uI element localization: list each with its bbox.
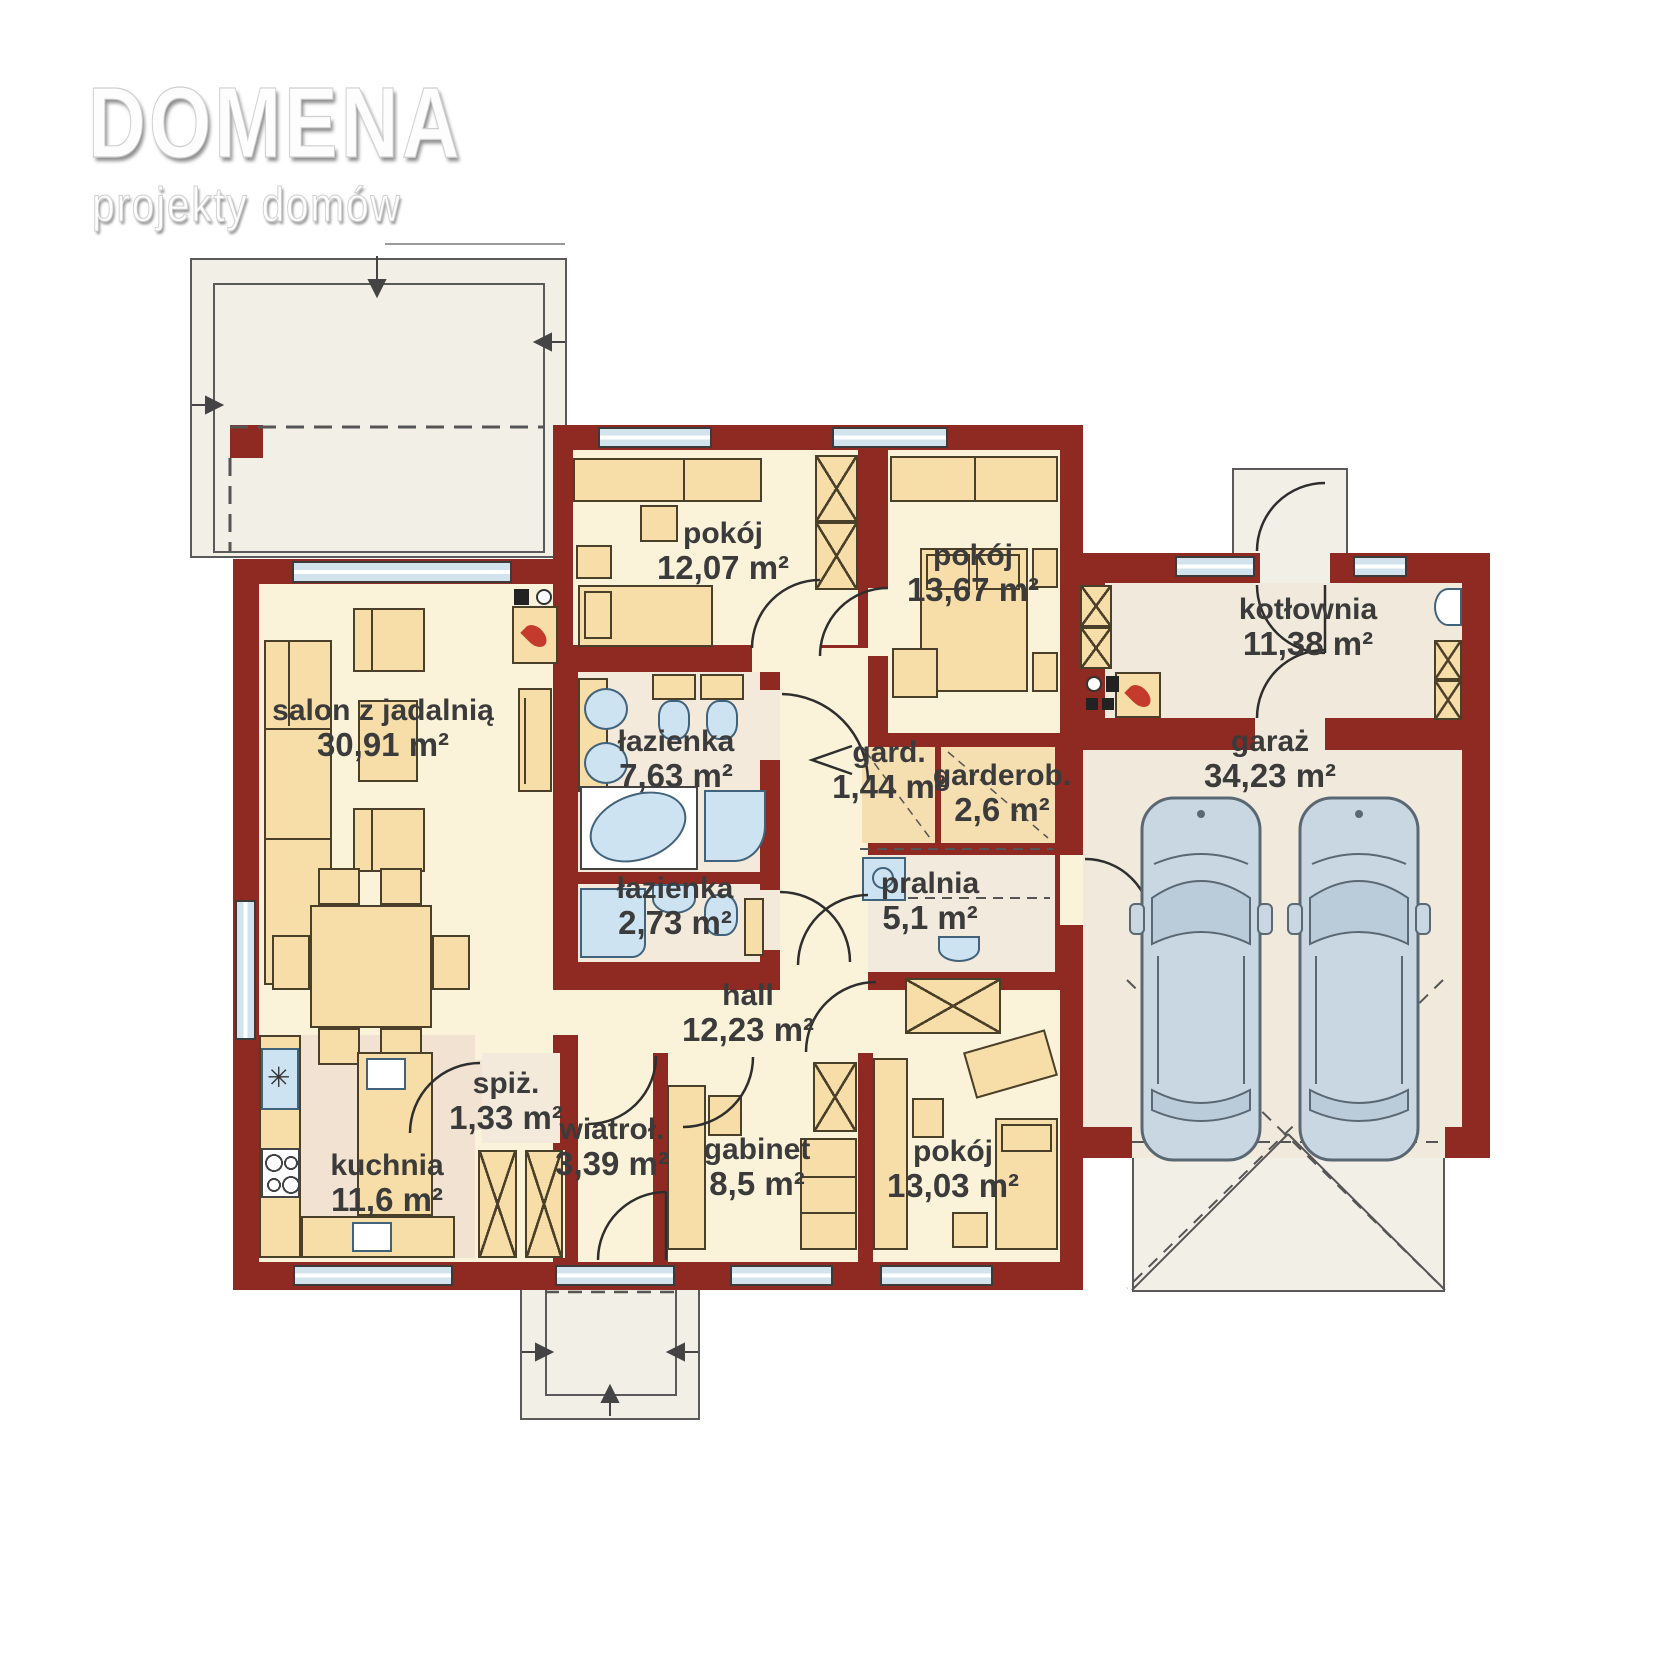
bedroom1-door-opening [752,645,820,672]
wiatrol-door-opening [585,1035,655,1053]
kitchen-sink [352,1222,392,1252]
wardrobe-icon [1434,640,1462,680]
room-label-garage: garaż34,23 m² [1204,726,1336,794]
bucket-icon [536,589,552,605]
wardrobe-icon [1434,680,1462,720]
floorplan-canvas: DOMENA projekty domów [0,0,1680,1680]
bedroom3-door-opening [806,1035,876,1053]
entry-vestibule [1232,468,1348,555]
window-bedroom2 [832,427,948,448]
hall-garage-door-opening [1060,855,1083,925]
toilet-cistern [652,674,696,700]
bath-cabinet [744,898,764,956]
wardrobe-icon [815,455,858,522]
room-label-salon: salon z jadalnią30,91 m² [272,695,494,763]
entry-door-glazing [555,1265,675,1286]
logo-title: DOMENA [88,66,463,181]
porch-inner-line [545,1288,677,1396]
hall-closet [905,978,1001,1034]
room-label-bedroom1: pokój12,07 m² [657,518,789,586]
dining-chair [432,935,470,990]
wardrobe-icon [478,1150,517,1258]
nightstand [1032,652,1058,692]
window-gabinet [730,1265,833,1286]
wardrobe-icon [1080,585,1112,627]
coal-box-icon [1106,676,1119,692]
side-table [952,1212,988,1248]
shower [704,790,766,862]
wardrobe-icon [815,522,858,590]
room-label-wiatrol: wiatroł.3,39 m² [555,1114,669,1182]
room-label-kitchen: kuchnia11,6 m² [330,1150,443,1218]
wardrobe-icon [1080,627,1112,669]
freezer-asterisk-icon: ✳ [267,1064,290,1092]
terrace-chimney [230,425,263,458]
bucket-icon [1086,676,1102,692]
wardrobe-icon [813,1062,857,1132]
hall-salon-opening [553,990,578,1035]
room-label-gabinet: gabinet8,5 m² [704,1134,811,1202]
window-kotlownia-left [1175,556,1255,577]
room-label-hall: hall12,23 m² [682,980,814,1048]
fireplace [512,606,558,664]
desk [573,458,762,502]
sink [584,688,628,730]
dining-table [310,905,432,1028]
window-salon-left [235,900,256,1040]
toilet-cistern [700,674,744,700]
wardrobe [890,456,1058,502]
island-sink [366,1058,406,1090]
armchair [353,808,425,872]
bedroom2-door-opening [868,588,888,656]
room-label-bedroom3: pokój13,03 m² [887,1136,1019,1204]
window-bedroom1 [598,427,712,448]
window-kitchen [293,1265,453,1286]
dining-chair [380,868,422,905]
logo-subtitle: projekty domów [92,178,402,233]
room-label-pralnia: pralnia5,1 m² [881,868,979,936]
window-kotlownia-right [1353,556,1407,577]
dining-chair [318,1028,360,1065]
boiler [1115,672,1161,718]
kotlownia-entry-opening [1260,553,1330,583]
window-bedroom3 [880,1265,993,1286]
room-label-gard: gard.1,44 m² [832,737,946,805]
room-garage-floor [1083,750,1462,1127]
pillow [584,591,612,639]
desk [667,1085,706,1250]
desk-chair [912,1098,944,1138]
room-label-bedroom2: pokój13,67 m² [907,540,1039,608]
terrace-inner-line [213,283,545,553]
logo-underline [385,243,565,245]
laundry-sink [938,936,980,962]
desk-chair [708,1095,742,1136]
room-label-kotlownia: kotłownia11,38 m² [1239,594,1377,662]
corridor-floor [780,648,868,990]
garage-door-strip [1132,1127,1445,1158]
room-label-bathroom2: łazienka2,73 m² [617,873,734,941]
bathroom1-door-opening [760,690,780,760]
side-table [892,648,938,698]
nightstand [576,545,612,579]
bed-single [578,585,713,647]
room-label-spiz: spiż.1,33 m² [449,1068,563,1136]
stove [261,1148,300,1198]
fireplace-flame-icon [520,621,550,651]
coal-box-icon [1102,698,1114,710]
tv-cabinet [518,688,552,792]
dining-chair [272,935,310,990]
window-salon-terrace [292,561,512,583]
armchair [353,608,425,672]
utility-sink [1434,588,1462,626]
room-label-garderoba: garderob.2,6 m² [933,760,1071,828]
boiler-flame-icon [1124,681,1154,711]
wood-box-icon [514,589,529,605]
dining-chair [318,868,360,905]
room-label-bathroom1: łazienka7,63 m² [618,726,735,794]
coal-box-icon [1086,698,1098,710]
